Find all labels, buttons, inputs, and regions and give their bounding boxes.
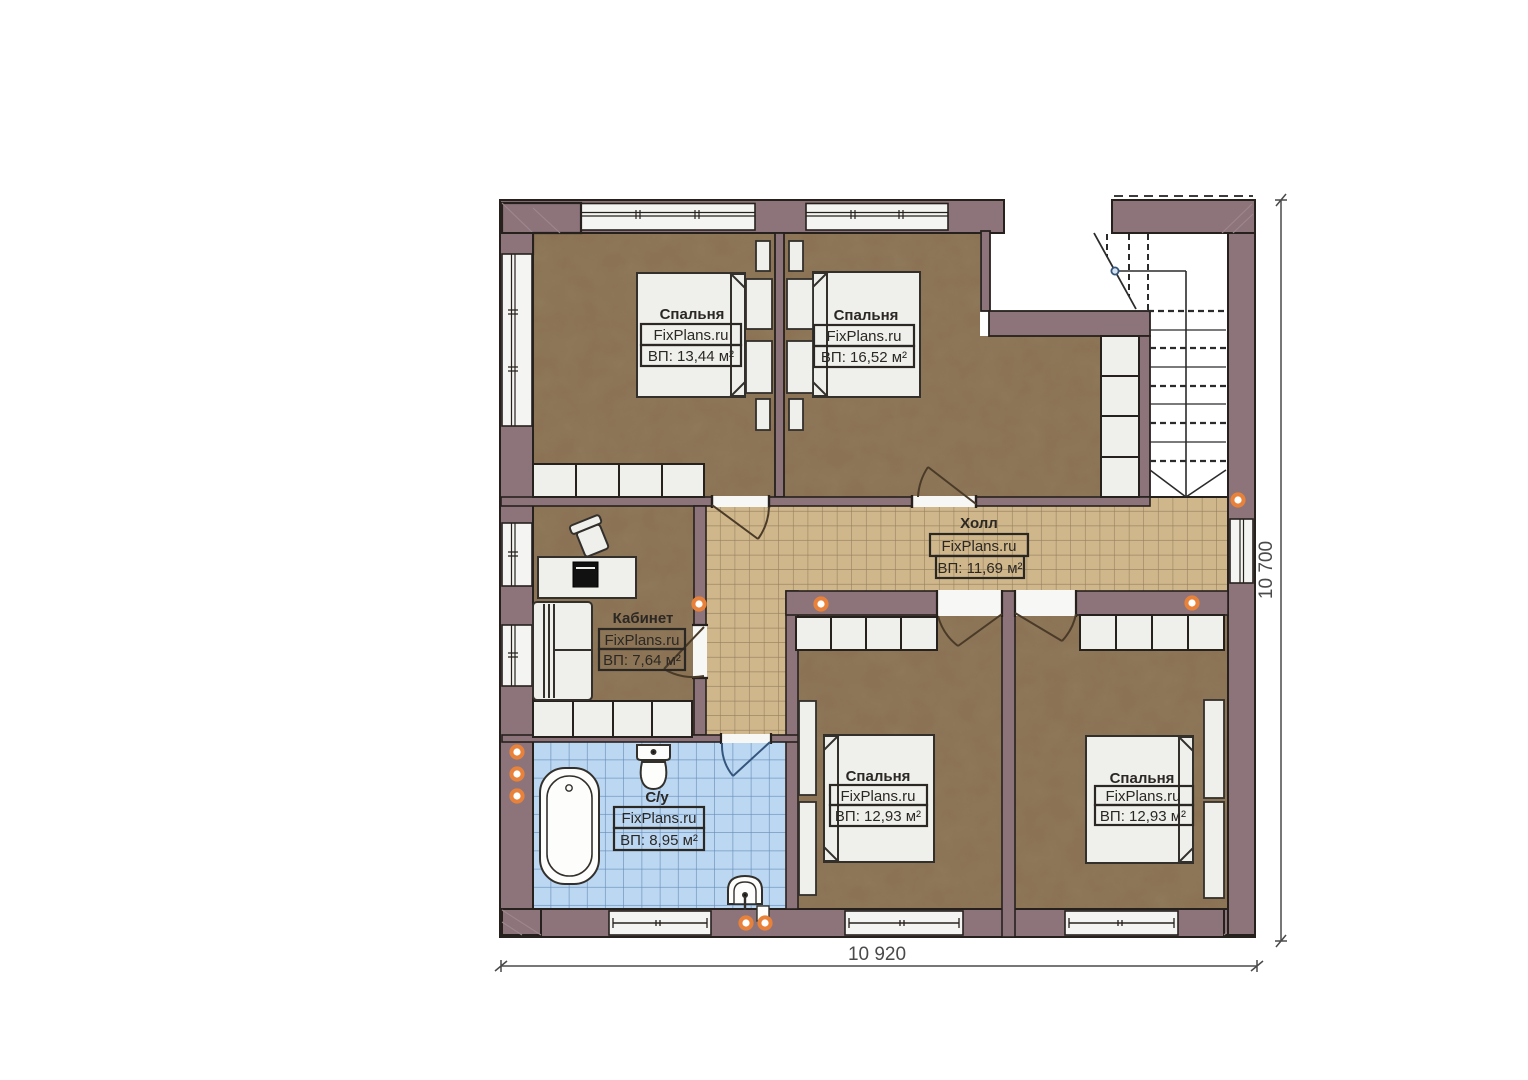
- svg-text:FixPlans.ru: FixPlans.ru: [826, 328, 901, 345]
- svg-text:Кабинет: Кабинет: [613, 610, 674, 627]
- svg-text:ВП: 12,93 м²: ВП: 12,93 м²: [1100, 808, 1186, 825]
- svg-text:FixPlans.ru: FixPlans.ru: [604, 632, 679, 649]
- svg-text:FixPlans.ru: FixPlans.ru: [941, 538, 1016, 555]
- svg-text:FixPlans.ru: FixPlans.ru: [840, 788, 915, 805]
- svg-text:Холл: Холл: [960, 515, 998, 532]
- svg-text:Спальня: Спальня: [660, 306, 725, 323]
- svg-text:ВП: 16,52 м²: ВП: 16,52 м²: [821, 349, 907, 366]
- svg-text:ВП: 8,95 м²: ВП: 8,95 м²: [620, 832, 698, 849]
- svg-text:10 920: 10 920: [848, 944, 906, 965]
- svg-text:ВП: 12,93 м²: ВП: 12,93 м²: [835, 808, 921, 825]
- svg-text:FixPlans.ru: FixPlans.ru: [621, 810, 696, 827]
- svg-text:Спальня: Спальня: [834, 307, 899, 324]
- svg-text:ВП: 13,44 м²: ВП: 13,44 м²: [648, 348, 734, 365]
- svg-text:10 700: 10 700: [1256, 541, 1277, 599]
- svg-text:FixPlans.ru: FixPlans.ru: [1105, 788, 1180, 805]
- svg-text:Спальня: Спальня: [1110, 770, 1175, 787]
- svg-text:ВП: 11,69 м²: ВП: 11,69 м²: [937, 560, 1022, 577]
- svg-text:С/у: С/у: [645, 789, 669, 806]
- svg-text:Спальня: Спальня: [846, 768, 911, 785]
- svg-text:FixPlans.ru: FixPlans.ru: [653, 327, 728, 344]
- svg-text:ВП: 7,64 м²: ВП: 7,64 м²: [603, 652, 681, 669]
